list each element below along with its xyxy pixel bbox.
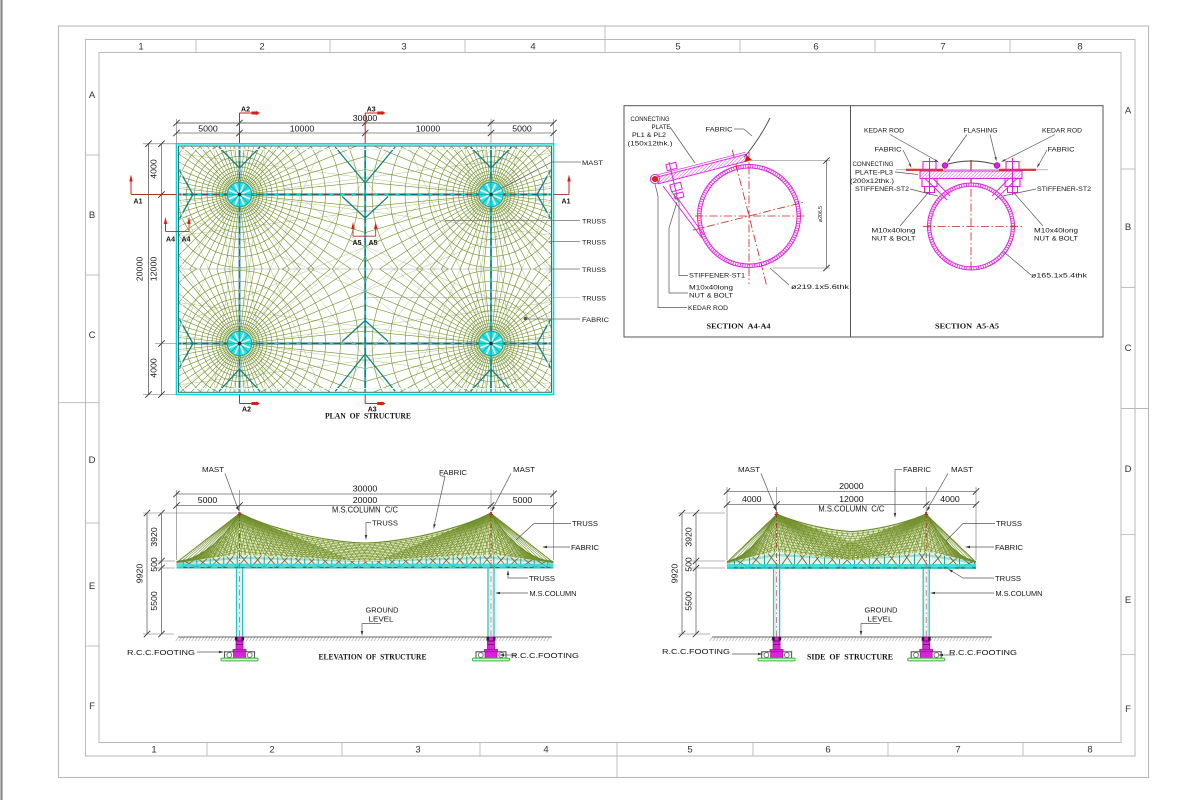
svg-text:FABRIC: FABRIC xyxy=(995,545,1023,552)
svg-text:LEVEL: LEVEL xyxy=(868,617,893,624)
svg-text:TRUSS: TRUSS xyxy=(582,219,606,226)
svg-text:GROUND: GROUND xyxy=(865,608,898,615)
svg-text:4000: 4000 xyxy=(940,494,960,504)
svg-text:7: 7 xyxy=(940,42,945,53)
svg-text:A1: A1 xyxy=(562,199,571,206)
svg-text:5: 5 xyxy=(687,745,692,756)
svg-text:M10x40long: M10x40long xyxy=(689,285,734,292)
svg-text:SIDE OF STRUCTURE: SIDE OF STRUCTURE xyxy=(807,652,893,662)
svg-text:LEVEL: LEVEL xyxy=(369,617,394,624)
svg-text:4000: 4000 xyxy=(149,358,159,378)
svg-text:ø206.5: ø206.5 xyxy=(818,206,824,222)
svg-text:4: 4 xyxy=(543,745,548,756)
svg-text:PL1 & PL2: PL1 & PL2 xyxy=(632,132,667,139)
svg-text:TRUSS: TRUSS xyxy=(996,521,1022,528)
svg-text:C: C xyxy=(1125,343,1132,354)
svg-text:R.C.C.FOOTING: R.C.C.FOOTING xyxy=(511,653,579,660)
svg-text:PLATE: PLATE xyxy=(652,124,671,131)
svg-text:30000: 30000 xyxy=(353,483,378,493)
svg-text:4000: 4000 xyxy=(742,494,762,504)
svg-text:5: 5 xyxy=(675,42,680,53)
svg-text:A: A xyxy=(89,90,96,101)
svg-text:E: E xyxy=(1125,595,1131,606)
svg-text:M10x40long: M10x40long xyxy=(872,228,917,235)
svg-text:FABRIC: FABRIC xyxy=(875,147,903,154)
svg-text:20000: 20000 xyxy=(135,256,145,281)
svg-text:C: C xyxy=(89,330,96,341)
svg-text:NUT & BOLT: NUT & BOLT xyxy=(1034,236,1078,243)
svg-text:SECTION A4-A4: SECTION A4-A4 xyxy=(707,322,771,331)
svg-text:GROUND: GROUND xyxy=(366,608,399,615)
svg-text:8: 8 xyxy=(1087,745,1092,756)
svg-text:PLAN OF STRUCTURE: PLAN OF STRUCTURE xyxy=(325,411,411,421)
svg-text:CONNECTING: CONNECTING xyxy=(631,116,670,123)
svg-text:M.S.COLUMN: M.S.COLUMN xyxy=(530,591,577,598)
svg-text:FABRIC: FABRIC xyxy=(706,127,734,134)
svg-text:SECTION A5-A5: SECTION A5-A5 xyxy=(935,322,999,331)
svg-text:5000: 5000 xyxy=(198,124,218,134)
svg-text:6: 6 xyxy=(813,42,818,53)
svg-text:TRUSS: TRUSS xyxy=(582,240,606,247)
svg-text:(150x12thk.): (150x12thk.) xyxy=(628,141,673,148)
svg-text:M10x40long: M10x40long xyxy=(1034,228,1079,235)
svg-text:5000: 5000 xyxy=(513,495,533,505)
svg-text:KEDAR ROD: KEDAR ROD xyxy=(1042,128,1083,135)
svg-text:(200x12thk.): (200x12thk.) xyxy=(850,178,894,185)
svg-text:MAST: MAST xyxy=(738,467,761,474)
svg-text:D: D xyxy=(89,455,96,466)
svg-text:A: A xyxy=(1125,106,1132,117)
svg-text:2: 2 xyxy=(269,745,274,756)
svg-text:4000: 4000 xyxy=(149,159,159,179)
svg-text:FABRIC: FABRIC xyxy=(582,317,609,324)
svg-text:TRUSS: TRUSS xyxy=(995,576,1021,583)
svg-text:12000: 12000 xyxy=(149,256,159,281)
svg-text:NUT & BOLT: NUT & BOLT xyxy=(689,293,733,300)
svg-text:MAST: MAST xyxy=(951,467,974,474)
svg-text:A5: A5 xyxy=(353,240,362,247)
svg-text:3920: 3920 xyxy=(149,527,159,547)
svg-text:TRUSS: TRUSS xyxy=(529,576,555,583)
svg-text:STIFFENER-ST2: STIFFENER-ST2 xyxy=(1037,186,1092,193)
svg-text:E: E xyxy=(89,581,95,592)
svg-text:R.C.C.FOOTING: R.C.C.FOOTING xyxy=(127,650,195,657)
svg-text:ø219.1x5.6thk: ø219.1x5.6thk xyxy=(791,284,850,291)
svg-text:FLASHING: FLASHING xyxy=(964,128,998,135)
svg-text:12000: 12000 xyxy=(839,494,864,504)
svg-text:9920: 9920 xyxy=(670,563,680,583)
svg-text:3920: 3920 xyxy=(684,527,694,547)
svg-text:5500: 5500 xyxy=(684,591,694,611)
svg-text:20000: 20000 xyxy=(839,481,864,491)
svg-text:STIFFENER-ST1: STIFFENER-ST1 xyxy=(689,273,746,280)
svg-text:M.S.COLUMN: M.S.COLUMN xyxy=(996,591,1043,598)
svg-text:MAST: MAST xyxy=(513,467,536,474)
svg-text:KEDAR ROD: KEDAR ROD xyxy=(864,128,905,135)
svg-text:PLATE-PL3: PLATE-PL3 xyxy=(855,170,894,177)
svg-text:20000: 20000 xyxy=(353,495,378,505)
svg-text:TRUSS: TRUSS xyxy=(572,521,598,528)
svg-text:R.C.C.FOOTING: R.C.C.FOOTING xyxy=(949,650,1017,657)
svg-text:3: 3 xyxy=(401,42,406,53)
svg-text:7: 7 xyxy=(955,745,960,756)
svg-text:3: 3 xyxy=(415,745,420,756)
svg-text:CONNECTING: CONNECTING xyxy=(853,161,894,168)
svg-text:STIFFENER-ST2: STIFFENER-ST2 xyxy=(855,186,910,193)
svg-text:8: 8 xyxy=(1077,42,1082,53)
svg-text:1: 1 xyxy=(151,745,156,756)
svg-text:1: 1 xyxy=(138,42,143,53)
svg-text:A2: A2 xyxy=(242,407,251,414)
svg-text:MAST: MAST xyxy=(202,467,225,474)
svg-text:R.C.C.FOOTING: R.C.C.FOOTING xyxy=(662,649,730,656)
svg-text:6: 6 xyxy=(825,745,830,756)
svg-text:M.S.COLUMN C/C: M.S.COLUMN C/C xyxy=(332,506,398,515)
svg-text:D: D xyxy=(1125,464,1132,475)
svg-text:9920: 9920 xyxy=(135,563,145,583)
svg-text:F: F xyxy=(1125,704,1131,715)
svg-text:500: 500 xyxy=(149,557,159,572)
svg-text:TRUSS: TRUSS xyxy=(582,296,606,303)
svg-text:A4: A4 xyxy=(166,237,175,244)
svg-text:5000: 5000 xyxy=(198,495,218,505)
svg-text:10000: 10000 xyxy=(290,124,315,134)
svg-text:B: B xyxy=(89,210,95,221)
svg-text:FABRIC: FABRIC xyxy=(1048,147,1076,154)
svg-text:10000: 10000 xyxy=(416,124,441,134)
svg-text:A1: A1 xyxy=(134,199,143,206)
svg-text:NUT & BOLT: NUT & BOLT xyxy=(872,236,916,243)
svg-text:ø165.1x5.4thk: ø165.1x5.4thk xyxy=(1031,273,1088,280)
svg-text:500: 500 xyxy=(684,557,694,572)
svg-text:TRUSS: TRUSS xyxy=(372,521,398,528)
svg-text:5500: 5500 xyxy=(149,591,159,611)
svg-text:A2: A2 xyxy=(241,107,250,114)
svg-text:A4: A4 xyxy=(182,237,191,244)
svg-text:4: 4 xyxy=(530,42,535,53)
svg-text:2: 2 xyxy=(259,42,264,53)
svg-text:M.S.COLUMN C/C: M.S.COLUMN C/C xyxy=(818,505,884,514)
svg-text:MAST: MAST xyxy=(582,160,603,167)
svg-text:B: B xyxy=(1125,222,1131,233)
svg-text:KEDAR ROD: KEDAR ROD xyxy=(688,305,729,312)
svg-text:5000: 5000 xyxy=(512,124,532,134)
svg-text:FABRIC: FABRIC xyxy=(571,545,599,552)
svg-text:ELEVATION OF STRUCTURE: ELEVATION OF STRUCTURE xyxy=(319,652,427,662)
svg-text:TRUSS: TRUSS xyxy=(582,267,606,274)
svg-text:F: F xyxy=(89,701,95,712)
svg-text:A5: A5 xyxy=(369,240,378,247)
svg-text:FABRIC: FABRIC xyxy=(903,467,931,474)
svg-text:A3: A3 xyxy=(367,107,376,114)
